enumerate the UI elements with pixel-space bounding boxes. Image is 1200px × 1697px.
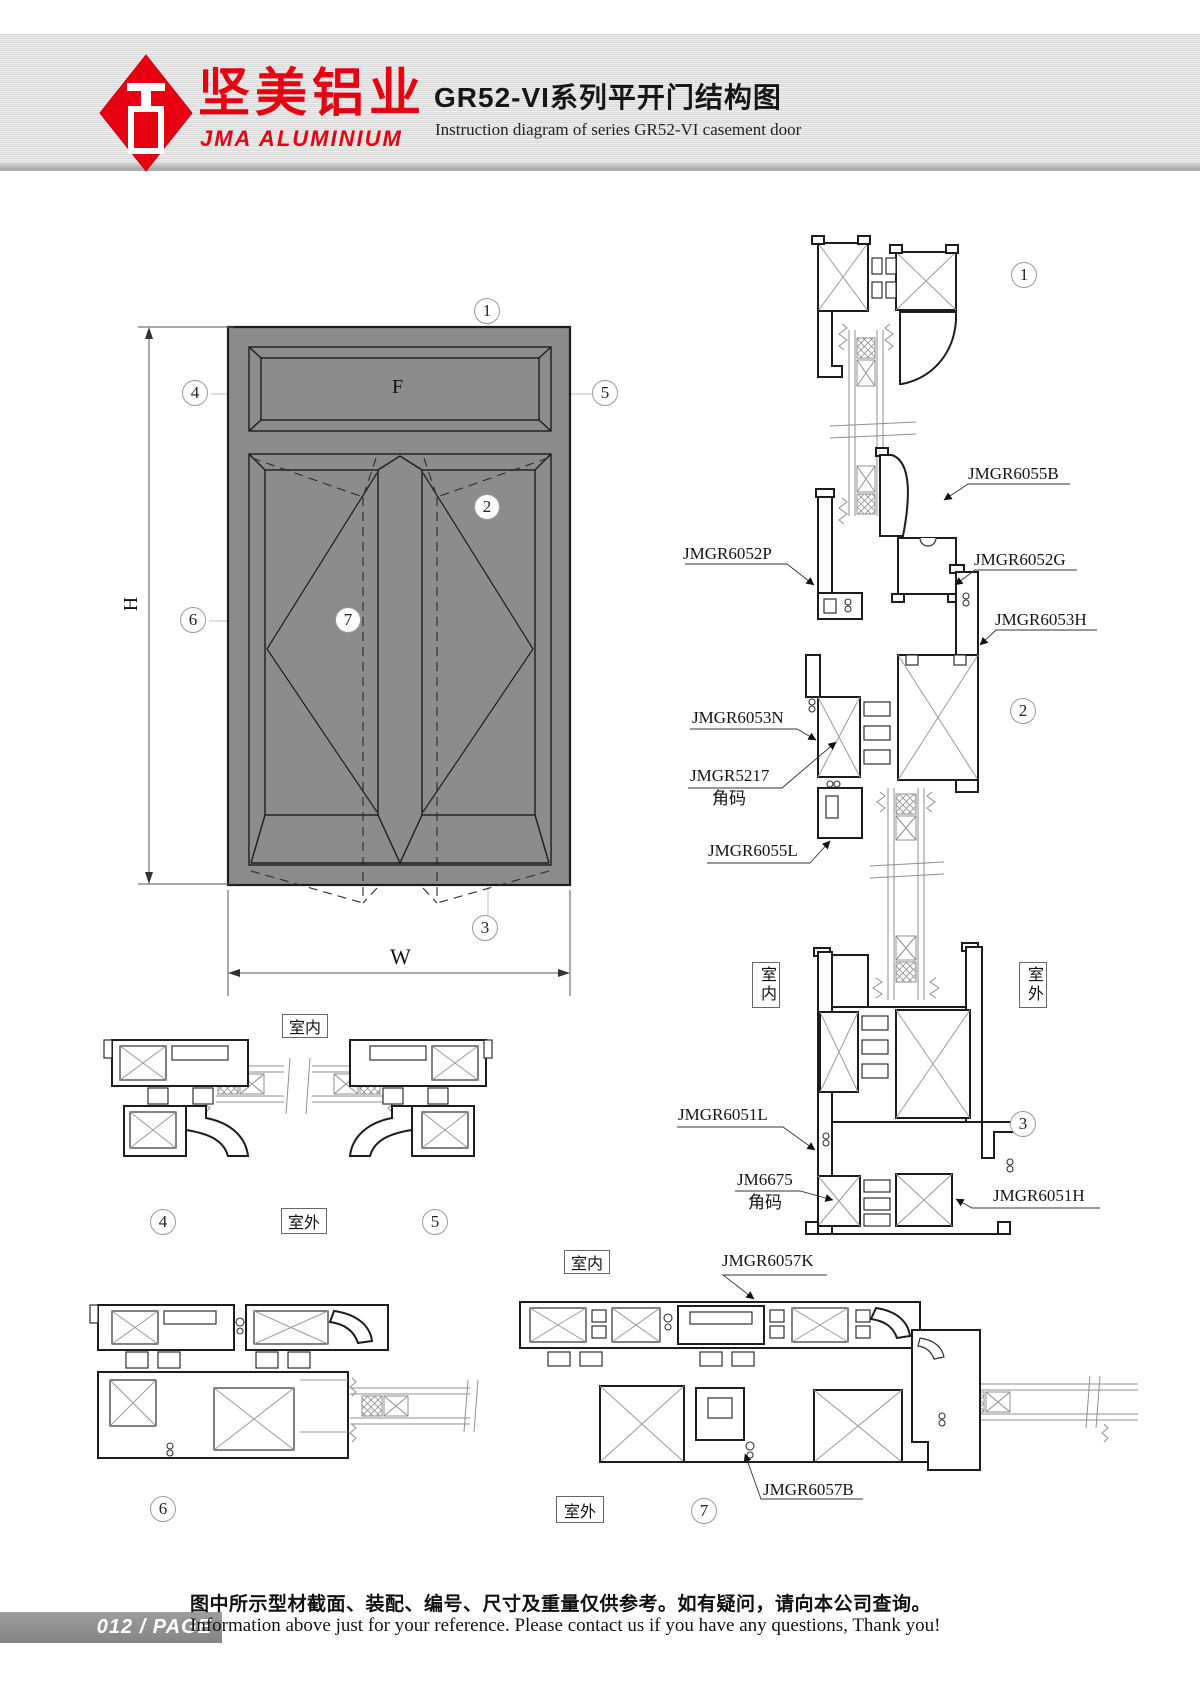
footer-note-en: Information above just for your referenc… xyxy=(190,1615,940,1637)
part-label-jmgr6057k: JMGR6057K xyxy=(722,1252,814,1269)
part-label-jmgr6055l: JMGR6055L xyxy=(708,842,798,859)
section-vertical xyxy=(806,236,1018,1234)
detail-2-transom xyxy=(806,448,978,838)
room-inside-vsec: 室内 xyxy=(752,962,780,1008)
callout-6-section: 6 xyxy=(150,1496,176,1522)
callout-5-section: 5 xyxy=(422,1209,448,1235)
drawing-canvas xyxy=(0,0,1200,1697)
callout-7-elevation: 7 xyxy=(335,607,361,633)
part-label-jmgr6051l: JMGR6051L xyxy=(678,1106,768,1123)
room-outside-mid: 室外 xyxy=(281,1208,327,1234)
part-label-jmgr6051h: JMGR6051H xyxy=(993,1187,1085,1204)
callout-7-section: 7 xyxy=(691,1498,717,1524)
callout-3-elevation: 3 xyxy=(472,915,498,941)
callout-4-section: 4 xyxy=(150,1209,176,1235)
section-h-mid xyxy=(104,1040,492,1156)
part-label-jiaoma-2: 角码 xyxy=(748,1194,782,1211)
part-label-jmgr6052g: JMGR6052G xyxy=(974,551,1066,568)
dim-f-label: F xyxy=(392,377,403,397)
dim-w-label: W xyxy=(390,946,411,968)
part-label-jmgr5217: JMGR5217 xyxy=(690,767,769,784)
room-inside-mid: 室内 xyxy=(282,1014,328,1038)
part-label-jmgr6052p: JMGR6052P xyxy=(683,545,772,562)
callout-5-elevation: 5 xyxy=(592,380,618,406)
part-label-jm6675: JM6675 xyxy=(737,1171,793,1188)
callout-2-section: 2 xyxy=(1010,698,1036,724)
callout-6-elevation: 6 xyxy=(180,607,206,633)
catalog-page: 坚美铝业 JMA ALUMINIUM GR52-VI系列平开门结构图 Instr… xyxy=(0,0,1200,1697)
section-h-bottom-mid xyxy=(520,1302,1138,1470)
part-label-jmgr6053h: JMGR6053H xyxy=(995,611,1087,628)
callout-4-elevation: 4 xyxy=(182,380,208,406)
callout-1-section: 1 xyxy=(1011,262,1037,288)
part-label-jiaoma-1: 角码 xyxy=(712,790,746,807)
detail-3-threshold xyxy=(806,943,1018,1234)
dim-h-label: H xyxy=(121,597,141,611)
room-outside-vsec: 室外 xyxy=(1019,962,1047,1008)
callout-1-elevation: 1 xyxy=(474,298,500,324)
part-label-jmgr6053n: JMGR6053N xyxy=(692,709,784,726)
footer-note-cn: 图中所示型材截面、装配、编号、尺寸及重量仅供参考。如有疑问，请向本公司查询。 xyxy=(190,1589,931,1616)
room-inside-bottom: 室内 xyxy=(564,1250,610,1274)
callout-2-elevation: 2 xyxy=(474,494,500,520)
part-label-jmgr6055b: JMGR6055B xyxy=(968,465,1059,482)
callout-3-section: 3 xyxy=(1010,1111,1036,1137)
section-h-bottom-left xyxy=(90,1305,478,1458)
room-outside-bottom: 室外 xyxy=(556,1496,604,1523)
page-number-badge: 012 / PAGE xyxy=(0,1612,222,1643)
part-label-jmgr6057b: JMGR6057B xyxy=(763,1481,854,1498)
door-elevation xyxy=(138,322,592,996)
detail-1-top-frame xyxy=(812,236,958,384)
